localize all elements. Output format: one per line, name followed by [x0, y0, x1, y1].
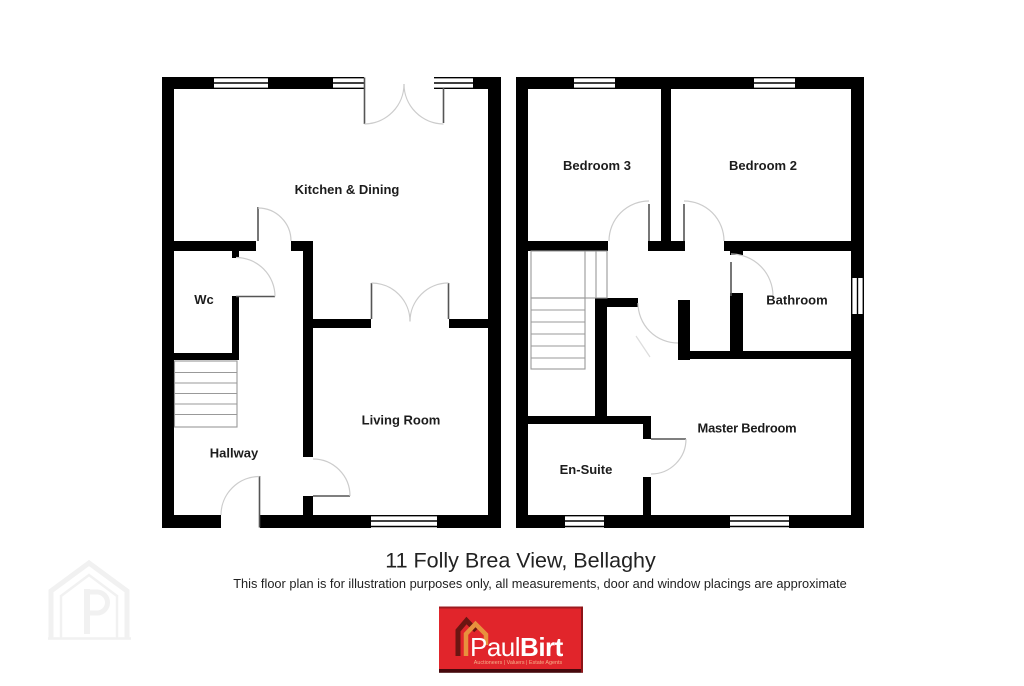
svg-text:PaulBirt: PaulBirt [470, 632, 564, 662]
svg-text:Kitchen & Dining: Kitchen & Dining [295, 182, 400, 197]
svg-text:Living Room: Living Room [362, 413, 441, 428]
svg-text:Master Bedroom: Master Bedroom [698, 421, 797, 436]
svg-text:Bedroom 2: Bedroom 2 [729, 158, 797, 173]
svg-text:This floor plan is for illustr: This floor plan is for illustration purp… [233, 576, 847, 591]
svg-text:11 Folly Brea View, Bellaghy: 11 Folly Brea View, Bellaghy [385, 549, 656, 573]
svg-text:En-Suite: En-Suite [560, 462, 613, 477]
svg-text:Bedroom 3: Bedroom 3 [563, 158, 631, 173]
svg-text:Hallway: Hallway [210, 446, 259, 461]
svg-text:Bathroom: Bathroom [766, 293, 827, 308]
svg-text:Wc: Wc [194, 292, 214, 307]
svg-text:Auctioneers | Valuers | Estate: Auctioneers | Valuers | Estate Agents [474, 660, 563, 666]
